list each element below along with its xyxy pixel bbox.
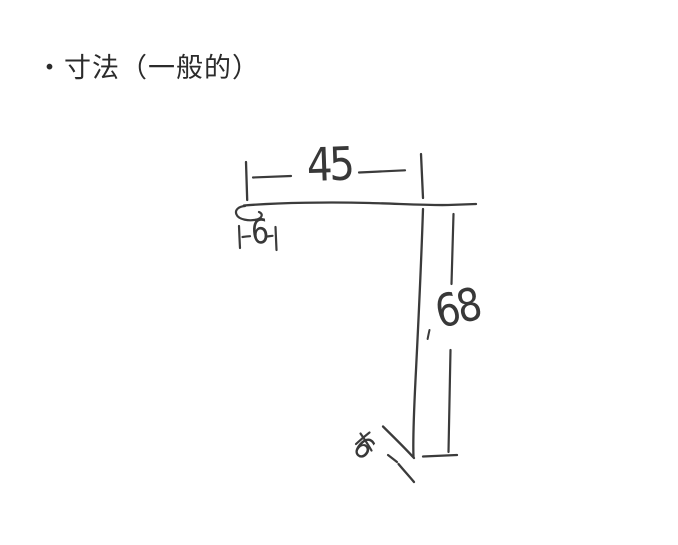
flange-top-line [244,203,476,206]
dimension-sketch-drawing [0,0,678,545]
dim68-line-lower [449,350,451,452]
dim45-tick-left [246,162,247,200]
dim68-comma-tick [428,330,430,339]
hem6-top-tick-right [276,227,277,250]
dim68-line-upper [452,214,454,284]
dim-label-top-hem: 6 [250,215,270,250]
leg-line [413,209,423,457]
dim45-dash-right [359,170,405,172]
document-page: ・寸法（一般的） 45 6 68 6 [0,0,678,545]
dim-label-top-width: 45 [306,140,352,188]
leg-bottom-hem-hook-icon [383,427,414,459]
hem6-bottom-tick-end [399,464,415,482]
hem6-top-dash-left [243,236,251,237]
hem6-top-tick-left [239,226,240,248]
dim45-tick-right [421,154,423,198]
dim45-dash-left [253,176,291,178]
hem6-bottom-dash [388,455,397,462]
dim68-tick-bottom [423,455,457,457]
